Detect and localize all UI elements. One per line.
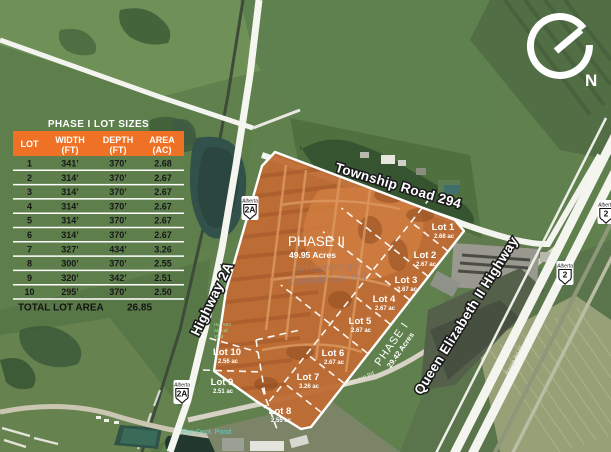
svg-text:Lot 2: Lot 2 [414,250,437,261]
svg-text:2.68 ac: 2.68 ac [434,234,455,240]
svg-text:Lot 10: Lot 10 [213,347,241,358]
svg-text:10: 10 [24,287,34,297]
svg-text:2.67 ac: 2.67 ac [375,306,396,312]
svg-text:370’: 370’ [109,201,127,211]
svg-text:370’: 370’ [109,259,127,269]
svg-text:314’: 314’ [61,187,79,197]
svg-text:314’: 314’ [61,201,79,211]
svg-text:370’: 370’ [109,173,127,183]
svg-text:295’: 295’ [61,287,79,297]
svg-text:AREA: AREA [149,135,175,145]
svg-text:49.95 Acres: 49.95 Acres [289,250,336,260]
svg-text:WIDTH: WIDTH [55,135,85,145]
svg-text:2: 2 [563,270,568,280]
svg-text:Lot 1: Lot 1 [432,222,455,233]
svg-text:2A: 2A [177,389,188,399]
svg-text:1: 1 [27,159,32,169]
svg-text:341’: 341’ [61,159,79,169]
svg-text:Lot 3: Lot 3 [395,275,418,286]
svg-text:Lot 6: Lot 6 [322,348,345,359]
svg-text:370’: 370’ [109,287,127,297]
svg-text:2.68: 2.68 [154,159,172,169]
svg-text:370’: 370’ [109,159,127,169]
svg-text:PHASE II: PHASE II [288,234,345,249]
svg-text:314’: 314’ [61,230,79,240]
svg-text:2.67: 2.67 [154,230,172,240]
svg-text:327’: 327’ [61,244,79,254]
svg-text:Lot 5: Lot 5 [349,316,372,327]
svg-text:6: 6 [27,230,32,240]
svg-text:8: 8 [27,259,32,269]
svg-text:2: 2 [604,209,609,219]
svg-text:TOTAL LOT AREA: TOTAL LOT AREA [18,303,104,314]
svg-text:2.67 ac: 2.67 ac [416,262,437,268]
svg-text:(AC): (AC) [153,145,172,155]
svg-text:370’: 370’ [109,216,127,226]
svg-text:3.26 ac: 3.26 ac [299,384,320,390]
svg-text:370’: 370’ [109,187,127,197]
svg-text:Lot 4: Lot 4 [373,294,396,305]
svg-text:2.55: 2.55 [154,259,172,269]
svg-text:9: 9 [27,273,32,283]
svg-text:5: 5 [27,216,32,226]
svg-text:4: 4 [27,201,32,211]
svg-text:DEPTH: DEPTH [103,135,134,145]
svg-text:314’: 314’ [61,216,79,226]
svg-text:434’: 434’ [109,244,127,254]
svg-text:2.67: 2.67 [154,173,172,183]
svg-text:370’: 370’ [109,230,127,240]
svg-text:2.56 ac: 2.56 ac [218,359,239,365]
svg-text:314’: 314’ [61,173,79,183]
svg-text:(FT): (FT) [62,145,79,155]
svg-text:2A: 2A [245,205,256,215]
svg-text:3: 3 [27,187,32,197]
svg-text:2.67: 2.67 [154,216,172,226]
svg-text:2.51 ac: 2.51 ac [213,389,234,395]
svg-text:Fire Dept. Pond: Fire Dept. Pond [182,429,231,436]
svg-text:2.55 ac: 2.55 ac [271,418,292,424]
svg-text:Lot 9: Lot 9 [211,377,234,388]
svg-text:7: 7 [27,244,32,254]
svg-text:N: N [585,71,597,90]
svg-text:Yard: Yard [214,334,224,339]
svg-text:Hwt Wld: Hwt Wld [214,322,231,327]
svg-text:300’: 300’ [61,259,79,269]
svg-text:2.67 ac: 2.67 ac [397,287,418,293]
svg-text:2: 2 [27,173,32,183]
svg-text:2.67: 2.67 [154,201,172,211]
svg-text:Lot 7: Lot 7 [297,372,320,383]
svg-text:AB Ltd: AB Ltd [214,328,228,333]
svg-text:PHASE I LOT SIZES: PHASE I LOT SIZES [48,119,149,130]
svg-text:Lot 8: Lot 8 [269,406,292,417]
svg-text:2.67 ac: 2.67 ac [351,328,372,334]
svg-text:3.26: 3.26 [154,244,172,254]
svg-text:320’: 320’ [61,273,79,283]
svg-text:2.67 ac: 2.67 ac [324,360,345,366]
svg-text:342’: 342’ [109,273,127,283]
svg-text:LOT: LOT [21,139,39,149]
svg-text:(FT): (FT) [110,145,127,155]
svg-text:2.67: 2.67 [154,187,172,197]
svg-text:26.85: 26.85 [127,303,152,314]
svg-text:2.51: 2.51 [154,273,172,283]
svg-text:2.50: 2.50 [154,287,172,297]
